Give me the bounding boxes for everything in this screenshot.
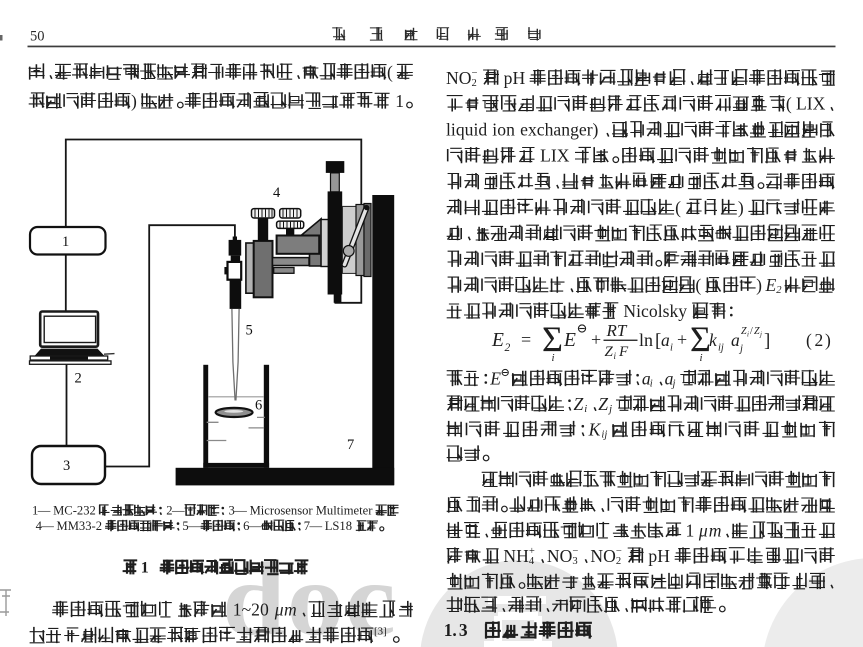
svg-text:NH: NH	[503, 546, 529, 566]
svg-text:]: ]	[764, 331, 770, 352]
svg-text:−: −	[572, 546, 578, 557]
svg-text:3: 3	[572, 556, 577, 567]
svg-text:(: (	[806, 330, 812, 350]
svg-text:—: —	[233, 504, 247, 518]
svg-text:a: a	[661, 330, 670, 350]
svg-text:2: 2	[505, 342, 511, 354]
svg-text:(: (	[675, 197, 681, 217]
svg-text:): )	[825, 330, 831, 350]
svg-text:−: −	[472, 68, 478, 79]
svg-text:Nicolsky: Nicolsky	[623, 301, 687, 321]
svg-text:LS18: LS18	[325, 519, 352, 533]
svg-text:pH: pH	[504, 68, 526, 88]
svg-text:Microsensor: Microsensor	[250, 504, 314, 518]
svg-text:2: 2	[75, 371, 82, 387]
svg-text:): )	[593, 120, 599, 140]
svg-text:LIX: LIX	[540, 146, 570, 166]
svg-text:−: −	[616, 546, 622, 557]
svg-text:1~20: 1~20	[233, 599, 269, 619]
svg-text:/: /	[750, 326, 753, 337]
svg-text:i: i	[700, 352, 703, 364]
svg-text:1: 1	[686, 520, 695, 540]
svg-text:i: i	[747, 331, 749, 339]
svg-text:2: 2	[815, 330, 824, 350]
svg-text:E: E	[491, 330, 504, 351]
svg-text:m: m	[284, 599, 297, 619]
svg-text:E: E	[765, 275, 777, 295]
svg-text:(: (	[786, 94, 792, 114]
svg-text:ij: ij	[601, 429, 607, 440]
svg-text:Z: Z	[574, 394, 584, 414]
svg-text:+: +	[591, 330, 601, 350]
svg-text:—: —	[40, 519, 54, 533]
svg-text:): )	[738, 197, 744, 217]
svg-text:F: F	[618, 344, 629, 360]
svg-text:Multimeter: Multimeter	[316, 504, 373, 518]
svg-text:NO: NO	[590, 546, 616, 566]
svg-text:NO: NO	[446, 68, 472, 88]
svg-text:j: j	[759, 331, 762, 339]
svg-text:): )	[131, 91, 137, 111]
svg-text:NO: NO	[547, 546, 573, 566]
svg-text:a: a	[731, 330, 740, 350]
svg-text:[3]: [3]	[374, 625, 387, 637]
svg-text:1: 1	[62, 234, 69, 250]
svg-text:i: i	[552, 352, 555, 364]
svg-text:—: —	[37, 504, 51, 518]
svg-text:2: 2	[472, 78, 477, 89]
svg-text:7: 7	[347, 437, 354, 453]
svg-text:MC-232: MC-232	[53, 504, 96, 518]
svg-text:+: +	[529, 546, 535, 557]
svg-text:1.: 1.	[444, 620, 457, 640]
svg-text:Z: Z	[598, 394, 608, 414]
svg-text:E: E	[563, 330, 576, 351]
svg-text:—: —	[187, 519, 201, 533]
svg-text:3: 3	[459, 620, 468, 640]
svg-text:k: k	[709, 330, 718, 350]
svg-text:4: 4	[273, 185, 281, 201]
svg-text:=: =	[521, 330, 531, 350]
svg-text:LIX: LIX	[796, 94, 826, 114]
svg-text:i: i	[584, 404, 587, 415]
svg-text:μ: μ	[274, 599, 284, 619]
svg-text:i: i	[670, 343, 673, 354]
svg-text:RT: RT	[606, 321, 628, 340]
svg-text:E: E	[489, 368, 501, 388]
svg-text:K: K	[588, 419, 602, 439]
svg-text:ln: ln	[639, 330, 653, 350]
svg-text:6: 6	[255, 398, 262, 414]
svg-text:ij: ij	[718, 343, 724, 354]
svg-text:i: i	[614, 351, 617, 361]
svg-text:1: 1	[141, 560, 149, 577]
svg-text:1: 1	[395, 91, 404, 111]
svg-text:Z: Z	[605, 344, 614, 360]
svg-text:exchanger: exchanger	[520, 120, 593, 140]
svg-text:μm: μm	[698, 520, 722, 540]
svg-text:—: —	[171, 504, 185, 518]
svg-text:2: 2	[776, 285, 782, 296]
svg-text:liquid: liquid	[446, 120, 487, 140]
svg-text:MM33-2: MM33-2	[57, 519, 103, 533]
svg-text:50: 50	[30, 29, 45, 45]
svg-text:3: 3	[63, 458, 70, 474]
svg-text:2: 2	[616, 556, 621, 567]
svg-text:—: —	[309, 519, 323, 533]
svg-text:ion: ion	[492, 120, 515, 140]
svg-text:+: +	[677, 330, 687, 350]
svg-text:): )	[756, 275, 762, 295]
svg-text:—: —	[248, 519, 262, 533]
svg-text:5: 5	[246, 323, 253, 339]
svg-text:4: 4	[529, 556, 535, 567]
svg-text:(: (	[695, 275, 701, 295]
svg-text:pH: pH	[648, 546, 670, 566]
svg-text:(: (	[387, 62, 393, 82]
svg-text:i: i	[650, 378, 653, 389]
